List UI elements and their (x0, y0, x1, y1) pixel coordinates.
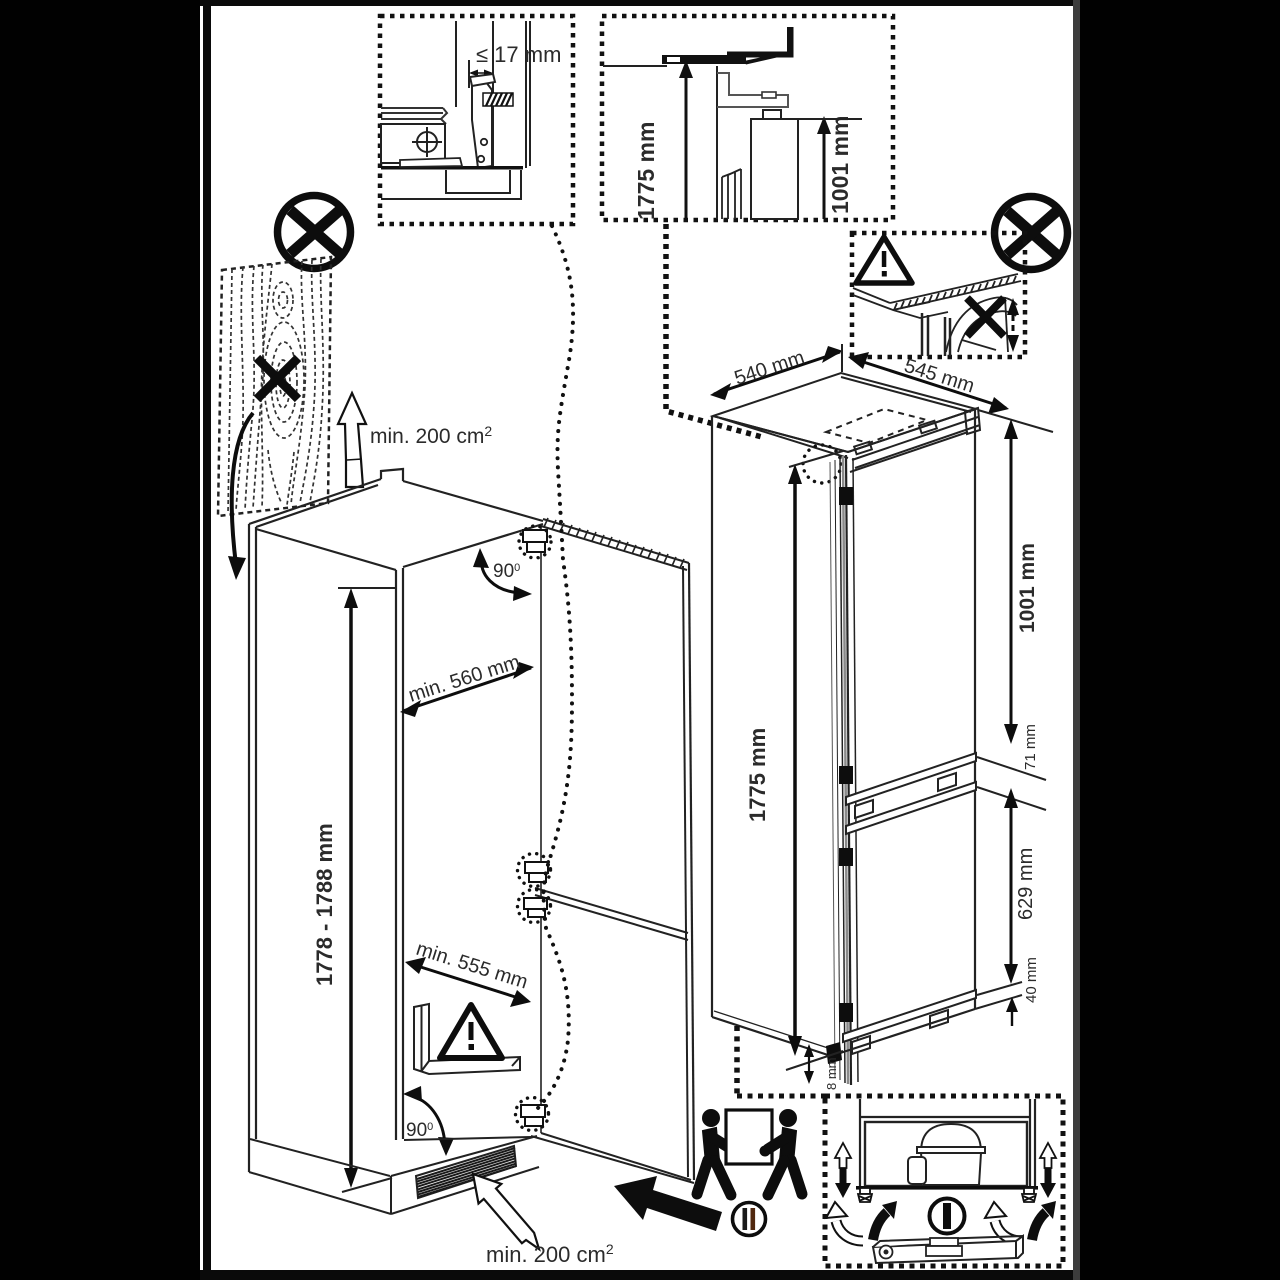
svg-text:1775 mm: 1775 mm (745, 728, 770, 822)
svg-text:71 mm: 71 mm (1022, 724, 1039, 770)
svg-text:8 mm: 8 mm (824, 1058, 839, 1091)
svg-text:629 mm: 629 mm (1015, 848, 1037, 920)
svg-text:≤ 17 mm: ≤ 17 mm (476, 42, 561, 67)
svg-text:40 mm: 40 mm (1023, 957, 1040, 1003)
svg-text:1775 mm: 1775 mm (633, 122, 659, 220)
svg-text:1001 mm: 1001 mm (1016, 543, 1039, 633)
svg-text:min. 200 cm2: min. 200 cm2 (486, 1241, 614, 1267)
svg-text:1001 mm: 1001 mm (827, 116, 853, 214)
svg-text:min. 200 cm2: min. 200 cm2 (370, 423, 492, 448)
svg-text:1778 - 1788 mm: 1778 - 1788 mm (312, 823, 337, 986)
